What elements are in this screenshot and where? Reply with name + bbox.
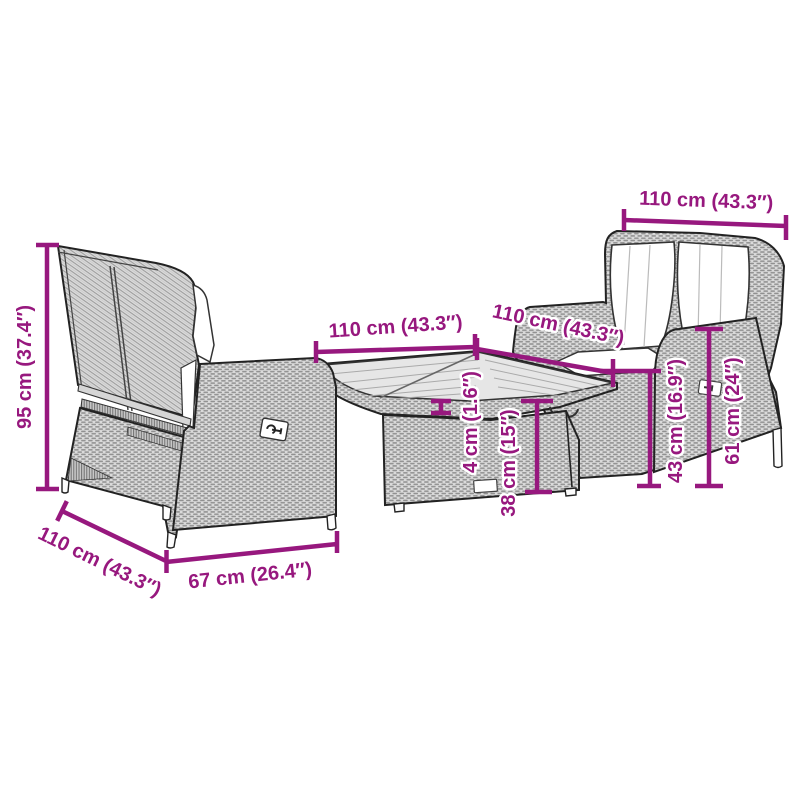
- svg-text:61 cm (24″): 61 cm (24″): [722, 357, 744, 464]
- svg-text:43 cm (16.9″): 43 cm (16.9″): [665, 359, 687, 483]
- svg-text:110 cm (43.3″): 110 cm (43.3″): [639, 188, 774, 215]
- svg-text:38 cm (15″): 38 cm (15″): [498, 409, 520, 516]
- svg-text:95 cm (37.4″): 95 cm (37.4″): [14, 305, 36, 429]
- svg-text:4 cm (1.6″): 4 cm (1.6″): [460, 371, 482, 473]
